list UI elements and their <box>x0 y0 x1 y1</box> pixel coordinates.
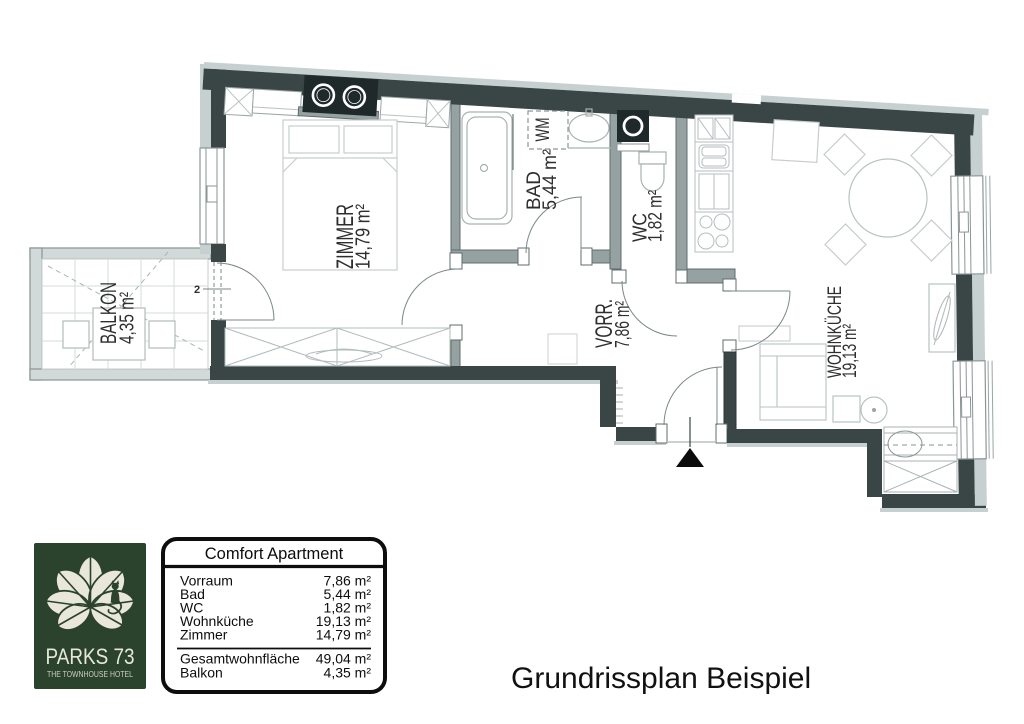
svg-text:Zimmer: Zimmer <box>180 627 228 643</box>
svg-text:7,86 m²: 7,86 m² <box>612 301 634 348</box>
svg-text:5,44 m²: 5,44 m² <box>540 149 561 210</box>
svg-text:Balkon: Balkon <box>180 665 223 681</box>
svg-text:4,35 m²: 4,35 m² <box>117 292 139 344</box>
svg-text:Comfort Apartment: Comfort Apartment <box>205 545 344 563</box>
svg-text:PARKS 73: PARKS 73 <box>46 644 135 669</box>
svg-text:14,79 m²: 14,79 m² <box>353 204 375 269</box>
svg-text:4,35 m²: 4,35 m² <box>324 665 372 681</box>
svg-text:WM: WM <box>533 118 554 142</box>
svg-text:2: 2 <box>194 284 200 296</box>
svg-text:Grundrissplan Beispiel: Grundrissplan Beispiel <box>511 662 811 695</box>
svg-text:14,79 m²: 14,79 m² <box>316 627 372 643</box>
svg-text:19,13 m²: 19,13 m² <box>840 324 861 378</box>
svg-text:THE TOWNHOUSE HOTEL: THE TOWNHOUSE HOTEL <box>47 670 133 679</box>
svg-text:1,82 m²: 1,82 m² <box>646 190 667 242</box>
